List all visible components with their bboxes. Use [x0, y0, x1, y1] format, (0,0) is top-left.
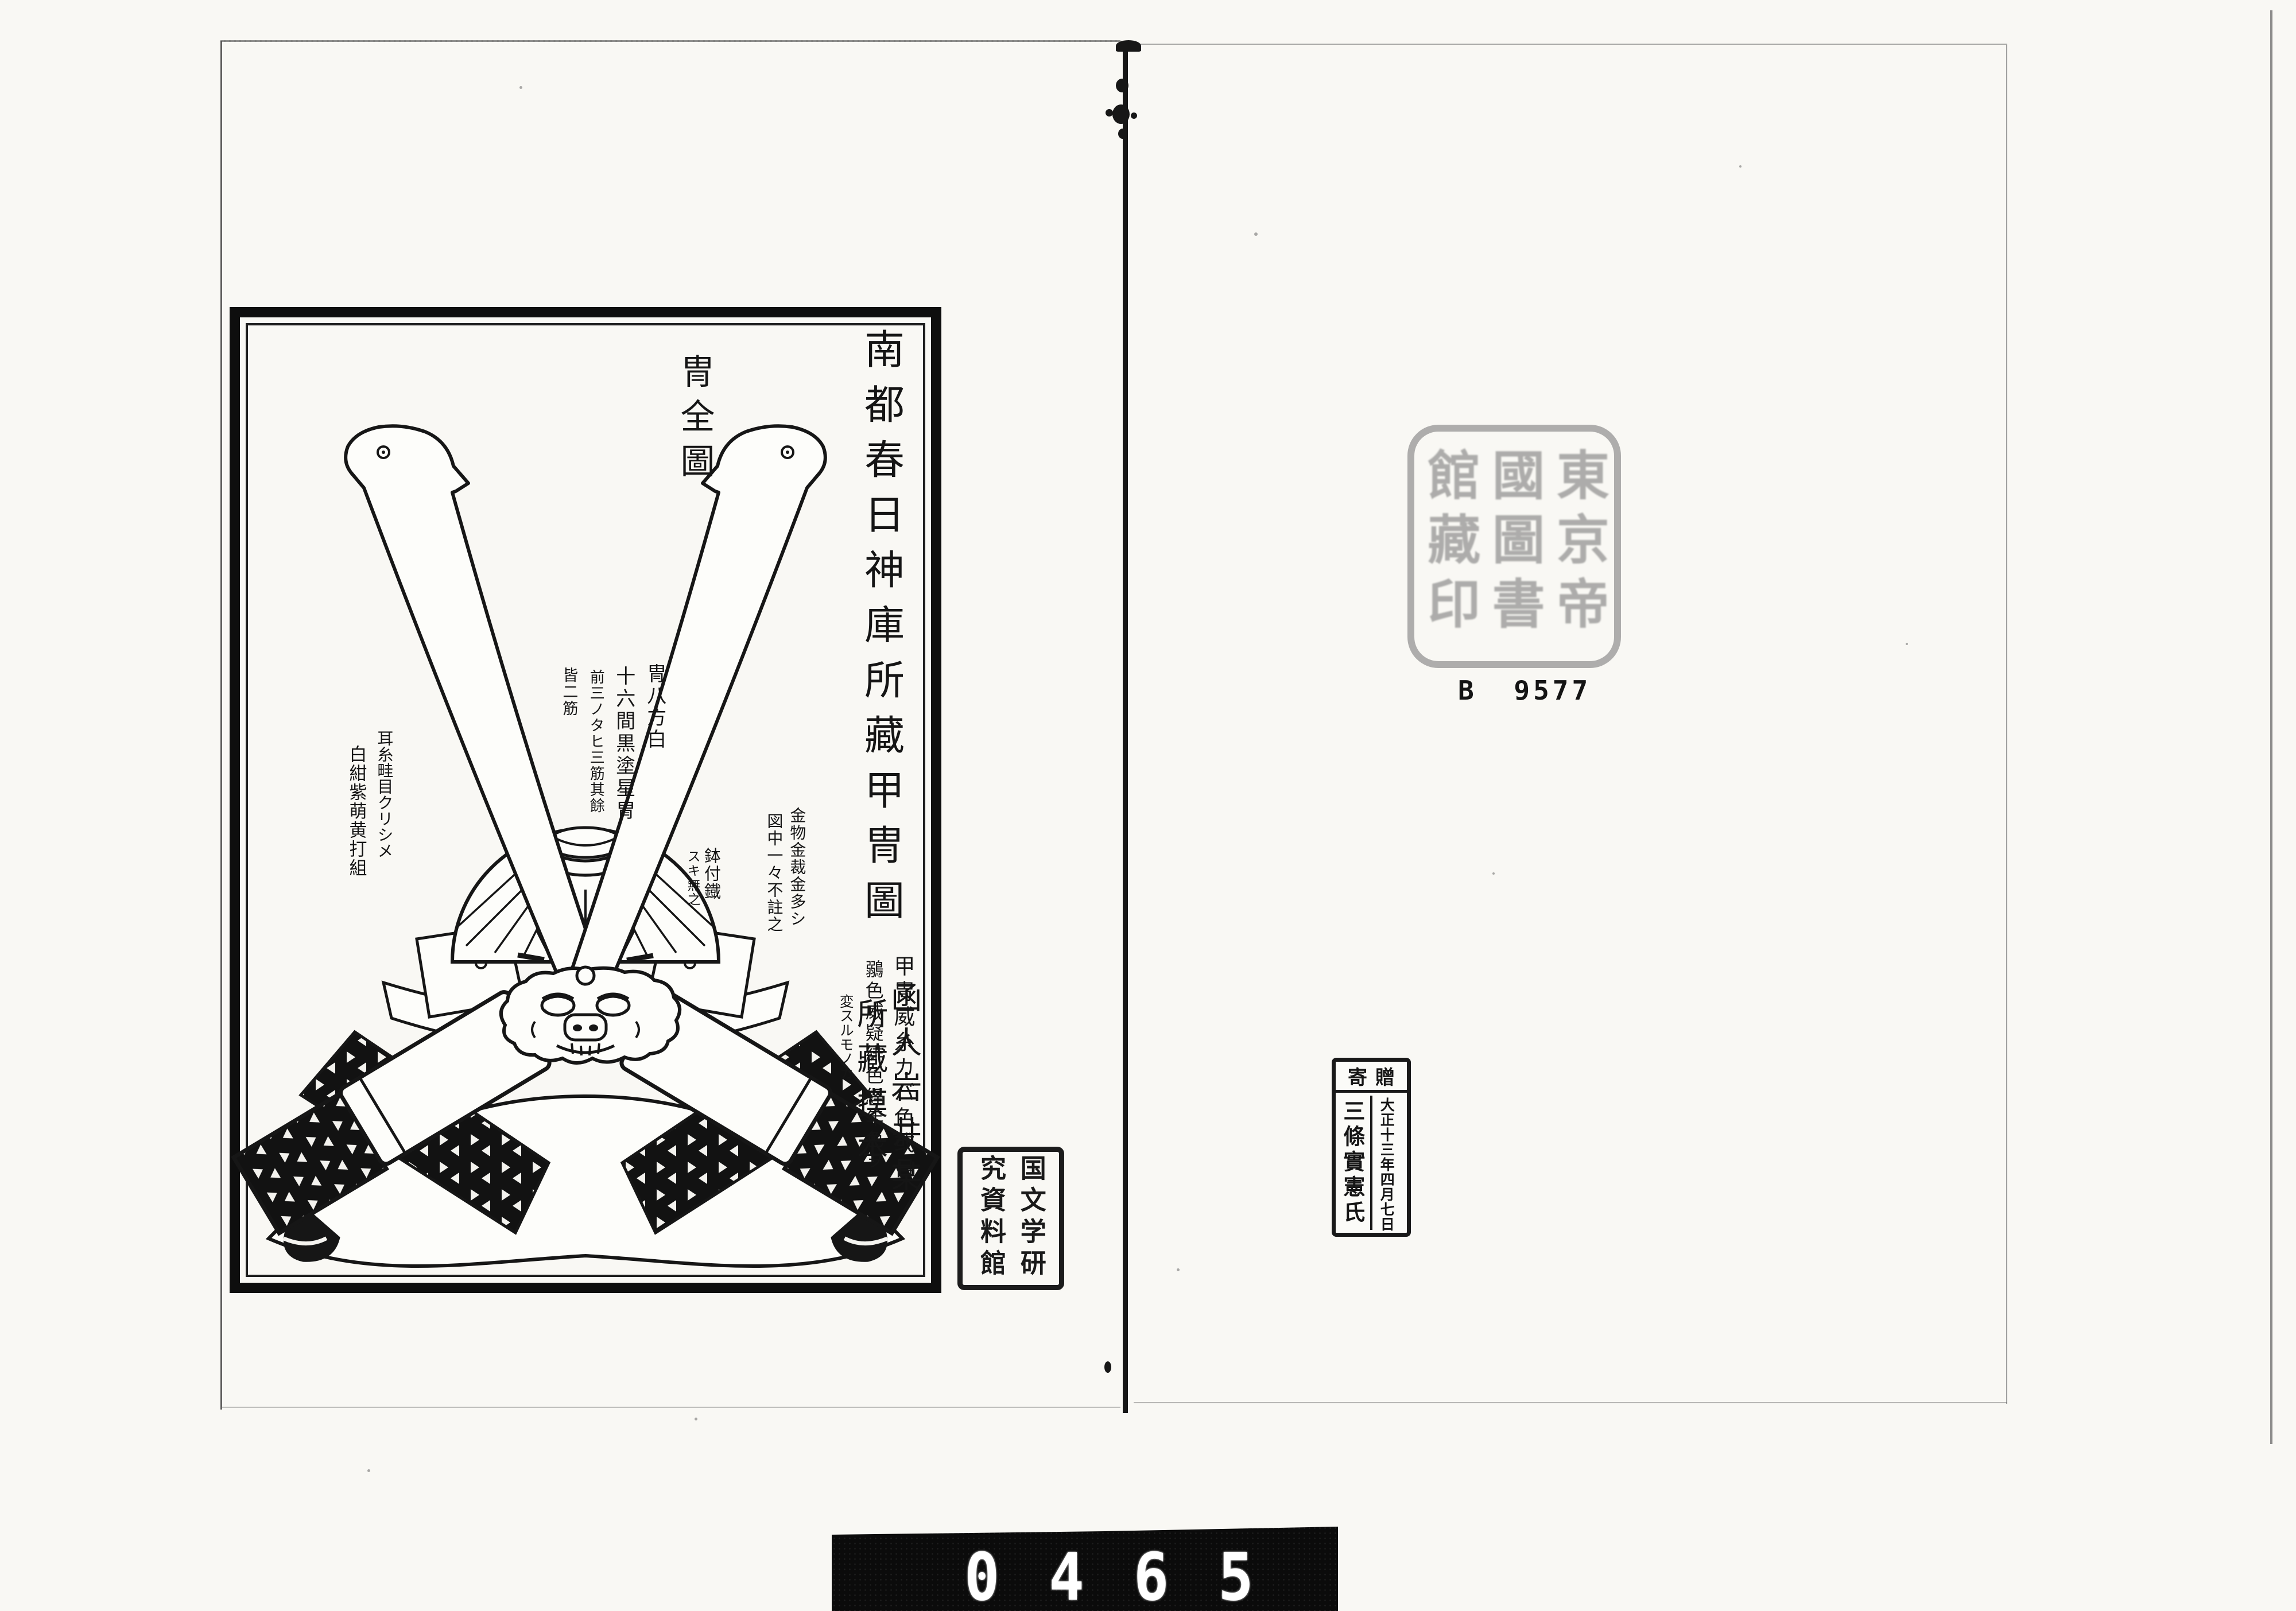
fold-ink-blob: [1131, 112, 1137, 119]
donation-stamp-header: 寄贈: [1336, 1062, 1407, 1093]
donation-stamp-date: 大正十三年四月七日: [1379, 1097, 1394, 1232]
fold-ink-blob: [1112, 104, 1130, 124]
annotation-bowl-rivets: 鉢付鐡: [703, 847, 720, 900]
annotation-hachi-ridges-2: 皆二筋: [560, 667, 576, 717]
left-page-edge-line: [220, 41, 222, 1410]
donation-stamp-name: 三條實憲氏: [1341, 1100, 1364, 1226]
annotation-lacing-3: 変スルモノカ: [838, 994, 853, 1080]
annotation-hachi-ridges: 前三ノタヒ三筋其餘: [588, 669, 603, 814]
center-fold-line: [1123, 44, 1128, 1413]
frame-counter-digits: 0465: [964, 1539, 1303, 1611]
dust-speck: [1177, 1268, 1180, 1271]
annotation-lacing-2: 鶸色威疑緋色経年色ヲ: [863, 960, 883, 1172]
annotation-hachi-plates: 十六間黒塗星冑: [613, 666, 634, 822]
fold-ink-blob: [1106, 109, 1113, 117]
scan-right-edge-line: [2270, 10, 2272, 1444]
menpo-face: [501, 967, 680, 1063]
annotation-fittings-2: 図中一々不註之: [766, 813, 782, 933]
bottom-left-edge-line: [220, 1407, 1120, 1408]
annotation-ear-cords: 耳糸畦目クリシメ: [376, 730, 393, 859]
dust-speck: [695, 1418, 697, 1420]
top-left-edge-line: [220, 40, 1120, 42]
library-seal-stamp: 東京帝國圖書館藏印: [1407, 425, 1621, 668]
dust-speck: [1739, 165, 1742, 168]
kabuto-illustration: [230, 307, 941, 1293]
top-right-edge-line: [1134, 44, 2007, 45]
dust-speck: [1254, 232, 1258, 236]
fold-ink-blob: [1116, 79, 1128, 92]
dust-speck: [1492, 872, 1495, 875]
fold-ink-blob: [1104, 1361, 1111, 1373]
annotation-fittings: 金物金裁金多シ: [789, 807, 805, 927]
figure-label: 冑全圖: [676, 354, 712, 488]
bottom-right-edge-line: [1134, 1402, 2007, 1403]
annotation-hachi-color: 冑八方白: [644, 663, 665, 751]
annotation-lacing: 甲冑威糸カバ色或日: [891, 955, 913, 1182]
annotation-bowl-rivets-2: スキ無之: [685, 849, 699, 907]
scanned-book-page: 南都春日神庫所藏甲冑圖 函人岩井某 所藏摸本 冑全圖 冑八方白 十六間黒塗星冑 …: [0, 0, 2296, 1611]
institution-seal-glyphs: 国文学研究資料館: [971, 1155, 1051, 1282]
dust-speck: [519, 86, 522, 89]
donation-stamp-divider: [1370, 1096, 1372, 1230]
dust-speck: [367, 1469, 370, 1472]
fold-ink-blob: [1118, 129, 1127, 139]
plate-title: 南都春日神庫所藏甲冑圖: [860, 328, 902, 934]
annotation-ear-cords-2: 白紺紫萌黄打組: [347, 745, 366, 878]
dust-speck: [1906, 643, 1908, 645]
call-number: B 9577: [1458, 675, 1591, 706]
library-seal-glyphs: 東京帝國圖書館藏印: [1418, 448, 1611, 646]
fold-ink-blob: [1116, 40, 1141, 52]
institution-seal-stamp: 国文学研究資料館: [957, 1147, 1064, 1290]
right-page-edge-line: [2006, 45, 2007, 1404]
